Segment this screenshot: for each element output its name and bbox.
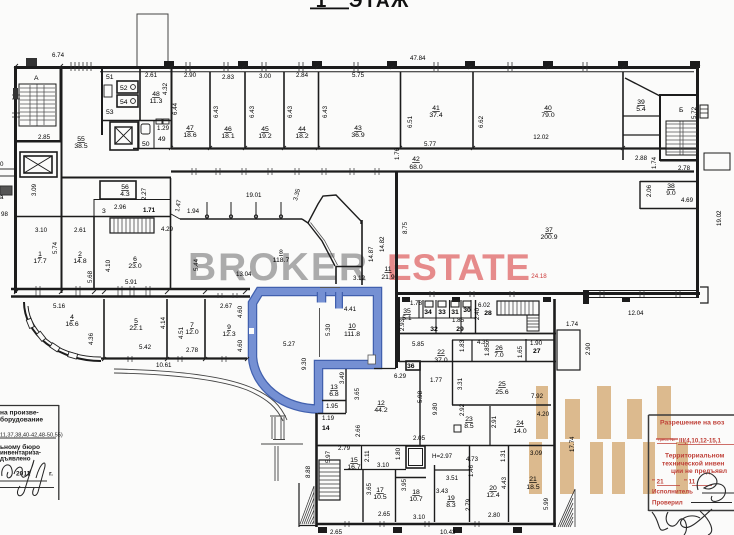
svg-text:9.80: 9.80	[432, 402, 439, 415]
svg-text:2.84: 2.84	[296, 72, 309, 79]
svg-text:3.10: 3.10	[413, 514, 426, 521]
svg-text:111.8: 111.8	[344, 331, 360, 338]
svg-text:" 21: " 21	[652, 479, 664, 486]
svg-text:51: 51	[106, 74, 114, 81]
svg-text:13.04: 13.04	[236, 271, 252, 278]
svg-text:12.0: 12.0	[185, 329, 198, 336]
svg-text:12.04: 12.04	[628, 310, 644, 317]
svg-text:1.83: 1.83	[459, 339, 466, 352]
svg-text:52: 52	[120, 85, 128, 92]
svg-text:41: 41	[432, 105, 440, 112]
svg-text:г.: г.	[49, 471, 53, 478]
svg-text:1.71: 1.71	[143, 207, 156, 214]
svg-text:18.1: 18.1	[221, 133, 234, 140]
svg-text:4.14: 4.14	[160, 316, 167, 329]
svg-text:5.27: 5.27	[283, 341, 296, 348]
svg-text:34: 34	[424, 309, 432, 316]
svg-text:H=2.97: H=2.97	[432, 453, 453, 460]
svg-text:2.88: 2.88	[635, 155, 648, 162]
svg-text:Проверил: Проверил	[652, 500, 683, 507]
svg-text:3.10: 3.10	[377, 462, 390, 469]
svg-text:2.06: 2.06	[646, 184, 653, 197]
svg-text:17.7: 17.7	[33, 258, 46, 265]
svg-text:4: 4	[70, 314, 74, 321]
svg-text:11: 11	[384, 266, 391, 273]
svg-text:5.44: 5.44	[193, 258, 200, 271]
svg-text:4.29: 4.29	[161, 226, 174, 233]
svg-text:1.47: 1.47	[174, 199, 183, 213]
svg-text:39: 39	[637, 99, 645, 106]
svg-text:3.12: 3.12	[353, 275, 366, 282]
svg-text:6.43: 6.43	[213, 105, 220, 118]
svg-text:21.9: 21.9	[381, 274, 394, 281]
svg-text:47: 47	[186, 125, 194, 132]
svg-text:1.31: 1.31	[500, 449, 507, 462]
svg-text:50: 50	[142, 141, 150, 148]
svg-text:2.90: 2.90	[585, 342, 592, 355]
svg-text:46: 46	[224, 126, 232, 133]
svg-text:дъявлено: дъявлено	[0, 456, 31, 463]
svg-text:2.79: 2.79	[465, 498, 472, 511]
svg-text:23.0: 23.0	[128, 263, 141, 270]
svg-text:1.78: 1.78	[410, 300, 423, 307]
svg-text:27: 27	[533, 348, 541, 355]
svg-text:2.27: 2.27	[141, 187, 148, 200]
svg-text:12.4: 12.4	[486, 492, 499, 499]
svg-text:1.85: 1.85	[484, 343, 491, 356]
svg-text:6: 6	[133, 256, 137, 263]
svg-text:1.80: 1.80	[395, 447, 402, 460]
svg-text:36.9: 36.9	[351, 132, 364, 139]
svg-text:3.35: 3.35	[292, 188, 302, 202]
svg-text:2.96: 2.96	[114, 204, 127, 211]
svg-text:3.00: 3.00	[259, 73, 272, 80]
svg-text:54: 54	[120, 99, 128, 106]
svg-text:1.77: 1.77	[430, 377, 443, 384]
svg-text:12: 12	[377, 400, 385, 407]
svg-text:1.90: 1.90	[530, 340, 543, 347]
svg-text:3.51: 3.51	[446, 475, 459, 482]
svg-text:6.8: 6.8	[329, 391, 339, 398]
svg-text:44.2: 44.2	[374, 407, 387, 414]
svg-text:1: 1	[38, 251, 42, 258]
svg-text:42: 42	[412, 156, 420, 163]
svg-text:16.7: 16.7	[347, 464, 360, 471]
svg-text:25: 25	[498, 381, 506, 388]
svg-text:7.92: 7.92	[531, 393, 544, 400]
svg-text:9: 9	[227, 324, 231, 331]
svg-text:25.6: 25.6	[495, 389, 508, 396]
svg-text:4.36: 4.36	[88, 332, 95, 345]
svg-text:3.09: 3.09	[530, 450, 543, 457]
svg-text:30: 30	[463, 307, 471, 314]
svg-text:2.65: 2.65	[330, 529, 343, 535]
svg-text:14.87: 14.87	[368, 246, 375, 262]
svg-text:49: 49	[158, 136, 166, 143]
svg-text:17: 17	[376, 487, 384, 494]
svg-text:борудование: борудование	[0, 416, 43, 424]
svg-text:2.83: 2.83	[222, 74, 235, 81]
svg-text:47.84: 47.84	[410, 55, 426, 62]
svg-text:23: 23	[465, 416, 473, 423]
svg-text:1.95: 1.95	[326, 403, 339, 410]
svg-text:8.88: 8.88	[305, 465, 312, 478]
svg-text:5.42: 5.42	[139, 344, 152, 351]
svg-text:18.6: 18.6	[183, 132, 196, 139]
svg-text:2.65: 2.65	[378, 511, 391, 518]
svg-text:79.0: 79.0	[541, 112, 554, 119]
svg-text:5.74: 5.74	[52, 241, 59, 254]
svg-text:37.0: 37.0	[434, 357, 447, 364]
svg-text:4.10: 4.10	[105, 259, 112, 272]
svg-text:19.01: 19.01	[246, 192, 262, 199]
svg-text:36: 36	[407, 363, 415, 370]
svg-text:ЭТАЖ: ЭТАЖ	[349, 0, 410, 12]
svg-text:2.66: 2.66	[355, 424, 362, 437]
svg-text:35: 35	[403, 308, 411, 315]
svg-text:4.41: 4.41	[344, 306, 357, 313]
svg-text:4.69: 4.69	[681, 197, 694, 204]
svg-text:98: 98	[1, 211, 8, 218]
svg-text:3.10: 3.10	[35, 227, 48, 234]
svg-text:200.9: 200.9	[540, 234, 557, 241]
svg-text:3: 3	[102, 208, 106, 215]
svg-text:68.0: 68.0	[409, 164, 422, 171]
svg-text:5.99: 5.99	[543, 497, 550, 510]
svg-text:29: 29	[456, 326, 464, 333]
svg-text:4.73: 4.73	[466, 456, 479, 463]
svg-text:11,37,38,40-42,48-50,55): 11,37,38,40-42,48-50,55)	[0, 433, 63, 439]
svg-text:2.61: 2.61	[74, 227, 87, 234]
svg-text:Разрешение на воз: Разрешение на воз	[660, 420, 725, 427]
svg-text:6.44: 6.44	[172, 102, 179, 115]
svg-text:31: 31	[451, 309, 459, 316]
svg-text:6.62: 6.62	[478, 115, 485, 128]
svg-text:24: 24	[516, 420, 524, 427]
svg-text:4.32: 4.32	[162, 82, 169, 95]
svg-text:53: 53	[106, 109, 114, 116]
svg-text:17.74: 17.74	[569, 436, 576, 452]
svg-text:10.43: 10.43	[440, 529, 456, 535]
svg-text:а: а	[0, 194, 4, 201]
svg-text:118.7: 118.7	[273, 257, 290, 264]
svg-text:А: А	[34, 75, 39, 82]
svg-text:11.3: 11.3	[150, 98, 163, 105]
svg-text:5.30: 5.30	[325, 323, 332, 336]
svg-text:19: 19	[447, 495, 455, 502]
svg-text:1.74: 1.74	[651, 156, 658, 169]
svg-text:4.51: 4.51	[178, 326, 185, 339]
svg-text:Б: Б	[679, 107, 684, 114]
svg-text:3.65: 3.65	[366, 482, 373, 495]
svg-text:14.8: 14.8	[73, 258, 86, 265]
svg-text:12.3: 12.3	[222, 331, 235, 338]
svg-text:2.80: 2.80	[488, 512, 501, 519]
svg-text:2: 2	[78, 251, 82, 258]
svg-text:4.60: 4.60	[237, 305, 244, 318]
svg-text:20: 20	[489, 485, 497, 492]
svg-text:6.74: 6.74	[52, 52, 65, 59]
svg-text:6.43: 6.43	[249, 105, 256, 118]
svg-text:9.30: 9.30	[301, 357, 308, 370]
svg-text:24.18: 24.18	[531, 273, 547, 280]
svg-text:1.46: 1.46	[468, 464, 475, 477]
svg-text:4.60: 4.60	[237, 339, 244, 352]
svg-text:4.3: 4.3	[120, 191, 130, 198]
svg-text:1.85: 1.85	[452, 317, 465, 324]
svg-text:2.61: 2.61	[145, 72, 158, 79]
svg-text:37: 37	[545, 227, 553, 234]
svg-text:8.5: 8.5	[464, 423, 474, 430]
svg-text:6.51: 6.51	[407, 115, 414, 128]
svg-text:28: 28	[484, 310, 492, 317]
svg-text:26: 26	[495, 345, 503, 352]
svg-text:38: 38	[667, 183, 675, 190]
svg-text:5.98: 5.98	[417, 390, 424, 403]
svg-text:5.4: 5.4	[636, 106, 646, 113]
svg-text:2.40: 2.40	[474, 307, 481, 320]
svg-text:0: 0	[0, 161, 4, 168]
svg-text:10.7: 10.7	[409, 496, 422, 503]
svg-text:1.29: 1.29	[157, 125, 170, 132]
svg-text:2.79: 2.79	[338, 445, 351, 452]
svg-text:2.91: 2.91	[491, 415, 498, 428]
svg-text:3.43: 3.43	[436, 488, 449, 495]
svg-text:6.43: 6.43	[322, 105, 329, 118]
svg-text:19.02: 19.02	[716, 210, 723, 226]
svg-text:1: 1	[316, 0, 329, 12]
svg-text:1.74: 1.74	[566, 321, 579, 328]
svg-text:12.02: 12.02	[533, 134, 549, 141]
svg-text:3.95: 3.95	[401, 478, 408, 491]
svg-text:48: 48	[152, 91, 160, 98]
svg-text:8: 8	[279, 249, 283, 256]
svg-text:7.0: 7.0	[494, 352, 504, 359]
svg-text:2.78: 2.78	[186, 347, 199, 354]
svg-text:14: 14	[322, 425, 330, 432]
svg-text:ESTATE: ESTATE	[387, 247, 530, 288]
svg-text:8.3: 8.3	[446, 502, 456, 509]
svg-text:Исполнитель: Исполнитель	[652, 489, 693, 496]
svg-text:19.2: 19.2	[258, 133, 271, 140]
svg-text:22.1: 22.1	[129, 325, 142, 332]
svg-text:5.85: 5.85	[412, 341, 425, 348]
svg-text:6.43: 6.43	[287, 105, 294, 118]
svg-text:14.82: 14.82	[379, 236, 386, 252]
svg-text:технической инвен: технической инвен	[662, 460, 724, 468]
svg-text:33: 33	[438, 309, 446, 316]
svg-text:18.2: 18.2	[295, 133, 308, 140]
svg-text:10.5: 10.5	[373, 494, 386, 501]
svg-text:6.02: 6.02	[478, 302, 491, 309]
svg-text:18.5: 18.5	[526, 484, 539, 491]
svg-text:2.11: 2.11	[364, 450, 371, 462]
svg-text:III(4,10,12-15,1: III(4,10,12-15,1	[679, 438, 722, 445]
svg-text:21: 21	[529, 476, 537, 483]
svg-text:2.93: 2.93	[399, 318, 406, 331]
svg-text:56: 56	[121, 184, 129, 191]
svg-text:55: 55	[77, 136, 85, 143]
svg-text:10.61: 10.61	[156, 362, 172, 369]
svg-text:44: 44	[298, 126, 306, 133]
svg-text:6.29: 6.29	[394, 373, 407, 380]
svg-text:2.92: 2.92	[459, 403, 466, 416]
svg-text:5.68: 5.68	[87, 270, 94, 283]
svg-text:22: 22	[437, 349, 445, 356]
svg-text:9.0: 9.0	[666, 190, 676, 197]
svg-text:43: 43	[354, 125, 362, 132]
svg-text:5.77: 5.77	[424, 141, 437, 148]
svg-text:2.85: 2.85	[38, 134, 51, 141]
svg-text:5.16: 5.16	[53, 303, 66, 310]
svg-text:18: 18	[412, 489, 420, 496]
svg-text:15: 15	[350, 457, 358, 464]
svg-text:4.20: 4.20	[537, 411, 550, 418]
svg-text:32: 32	[430, 326, 438, 333]
svg-text:Территориальном: Территориальном	[665, 453, 725, 460]
svg-text:38.5: 38.5	[74, 143, 87, 150]
svg-text:ции не предъявл: ции не предъявл	[671, 468, 727, 475]
svg-text:2.90: 2.90	[184, 72, 197, 79]
svg-text:на произве-: на произве-	[0, 410, 39, 417]
svg-text:5.97: 5.97	[325, 450, 332, 463]
svg-text:5.91: 5.91	[125, 279, 138, 286]
svg-text:3.49: 3.49	[339, 371, 346, 384]
svg-text:13: 13	[330, 384, 338, 391]
svg-text:1.65: 1.65	[517, 345, 524, 358]
svg-text:2.05: 2.05	[413, 435, 426, 442]
svg-text:16.6: 16.6	[65, 321, 78, 328]
svg-text:1.19: 1.19	[322, 415, 335, 422]
svg-text:2.67: 2.67	[220, 303, 233, 310]
svg-text:5.75: 5.75	[352, 72, 365, 79]
svg-text:14.0: 14.0	[513, 428, 526, 435]
svg-text:7: 7	[190, 322, 194, 329]
svg-text:5.72: 5.72	[691, 106, 698, 119]
svg-text:3.31: 3.31	[457, 377, 464, 390]
svg-text:37.4: 37.4	[429, 112, 442, 119]
svg-text:3.65: 3.65	[354, 387, 361, 400]
svg-text:5: 5	[134, 318, 138, 325]
svg-text:" 11: " 11	[684, 479, 696, 486]
svg-text:1.94: 1.94	[187, 208, 200, 215]
svg-text:3.09: 3.09	[31, 183, 38, 196]
svg-text:8.75: 8.75	[402, 221, 409, 234]
svg-text:40: 40	[544, 105, 552, 112]
svg-text:10: 10	[348, 323, 356, 330]
svg-text:4.43: 4.43	[501, 476, 508, 489]
svg-text:45: 45	[261, 126, 269, 133]
svg-text:1.76: 1.76	[394, 147, 401, 160]
